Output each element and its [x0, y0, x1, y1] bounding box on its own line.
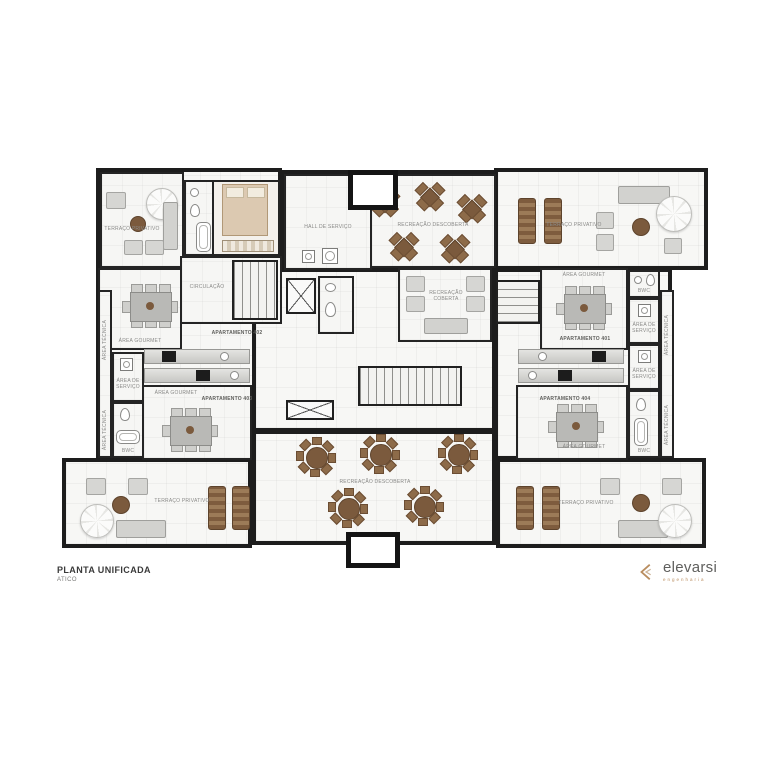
- logo-tagline: engenharia: [663, 577, 717, 582]
- label-wc-rt: BWC: [630, 288, 658, 294]
- label-service-hall: HALL DE SERVIÇO: [288, 224, 368, 230]
- stairs: [232, 260, 278, 320]
- sun-lounger: [518, 198, 536, 244]
- washer-icon: [120, 358, 133, 371]
- dining-table: [122, 284, 178, 328]
- label-lounge-covered: RECREAÇÃO COBERTA: [424, 290, 468, 303]
- label-gourmet-br: ÁREA GOURMET: [554, 444, 614, 450]
- label-tech-left-2: ÁREA TÉCNICA: [102, 380, 108, 480]
- logo-brand: elevarsi: [663, 560, 717, 575]
- sun-lounger: [516, 486, 534, 530]
- kitchen-counter: [144, 349, 250, 364]
- floor-plan-canvas: TERRAÇO PRIVATIVO CIRCULAÇÃO ÁREA GOURME…: [0, 0, 768, 768]
- elevarsi-logo-icon: [636, 560, 658, 584]
- washer-icon: [638, 350, 651, 363]
- shaft-bottom: [346, 532, 400, 568]
- armchair: [406, 276, 425, 292]
- round-table-set: [360, 434, 400, 474]
- label-wc-left: BWC: [114, 448, 142, 454]
- elevator: [286, 278, 316, 314]
- toilet: [646, 274, 655, 286]
- label-tech-left-1: ÁREA TÉCNICA: [102, 290, 108, 390]
- main-stairs: [358, 366, 462, 406]
- umbrella: [80, 504, 114, 538]
- armchair: [145, 240, 164, 255]
- plan-subtitle: ATICO: [57, 577, 77, 583]
- label-gourmet-tl: ÁREA GOURMET: [110, 338, 170, 344]
- kitchen-sink: [538, 352, 547, 361]
- armchair: [466, 296, 485, 312]
- round-table-set: [438, 434, 478, 474]
- skylight-box: [286, 400, 334, 420]
- bathtub: [196, 222, 211, 252]
- toilet: [636, 398, 646, 411]
- kitchen-sink: [230, 371, 239, 380]
- sofa: [163, 202, 178, 250]
- armchair: [124, 240, 143, 255]
- armchair: [128, 478, 148, 495]
- armchair: [596, 234, 614, 251]
- sink: [325, 283, 336, 292]
- cooktop: [196, 370, 210, 381]
- pillow: [226, 187, 244, 198]
- shaft-top: [348, 170, 398, 210]
- kitchen-counter: [518, 349, 624, 364]
- armchair: [106, 192, 126, 209]
- label-apartment-404: APARTAMENTO 404: [520, 396, 610, 402]
- umbrella: [656, 196, 692, 232]
- sofa: [424, 318, 468, 334]
- cooktop: [592, 351, 606, 362]
- umbrella: [658, 504, 692, 538]
- round-table-set: [296, 437, 336, 477]
- armchair: [662, 478, 682, 495]
- stove-icon: [322, 248, 338, 264]
- washer-icon: [638, 304, 651, 317]
- sink: [190, 188, 199, 197]
- sun-lounger: [542, 486, 560, 530]
- kitchen-sink: [220, 352, 229, 361]
- label-terrace-br: TERRAÇO PRIVATIVO: [556, 500, 616, 506]
- round-side-table: [632, 494, 650, 512]
- label-terrace-bl: TERRAÇO PRIVATIVO: [152, 498, 212, 504]
- label-tech-right-2: ÁREA TÉCNICA: [664, 375, 670, 475]
- label-terrace-tr: TERRAÇO PRIVATIVO: [544, 222, 604, 228]
- round-side-table: [112, 496, 130, 514]
- dining-table: [556, 286, 612, 330]
- label-apartment-403: APARTAMENTO 403: [182, 396, 272, 402]
- label-apartment-402: APARTAMENTO 402: [192, 330, 282, 336]
- pillow: [247, 187, 265, 198]
- dining-table: [548, 404, 604, 448]
- label-service-r1: ÁREA DE SERVIÇO: [630, 322, 658, 335]
- armchair: [600, 478, 620, 495]
- kitchen-sink: [528, 371, 537, 380]
- cooktop: [162, 351, 176, 362]
- bed: [222, 184, 268, 236]
- round-table-set: [404, 486, 444, 526]
- label-tech-right-1: ÁREA TÉCNICA: [664, 285, 670, 385]
- round-side-table: [632, 218, 650, 236]
- bathtub: [116, 430, 140, 444]
- armchair: [406, 296, 425, 312]
- label-terrace-tl: TERRAÇO PRIVATIVO: [102, 226, 162, 232]
- sofa: [116, 520, 166, 538]
- label-service-left: ÁREA DE SERVIÇO: [114, 378, 142, 391]
- dining-table: [162, 408, 218, 452]
- plan-title: PLANTA UNIFICADA: [57, 565, 151, 575]
- toilet: [190, 204, 200, 217]
- cooktop: [558, 370, 572, 381]
- sun-lounger: [544, 198, 562, 244]
- toilet: [120, 408, 130, 421]
- stairs-right: [496, 280, 540, 324]
- label-recreation-bottom: RECREAÇÃO DESCOBERTA: [330, 479, 420, 485]
- label-gourmet-tr: ÁREA GOURMET: [554, 272, 614, 278]
- label-recreation-top: RECREAÇÃO DESCOBERTA: [388, 222, 478, 228]
- toilet: [325, 302, 336, 317]
- sink: [634, 276, 642, 284]
- wc-center: [318, 276, 354, 334]
- label-circulation: CIRCULAÇÃO: [184, 284, 230, 290]
- sun-lounger: [208, 486, 226, 530]
- bathtub: [634, 418, 648, 446]
- round-table-set: [328, 488, 368, 528]
- armchair: [664, 238, 682, 254]
- company-logo: elevarsi engenharia: [636, 560, 746, 596]
- label-wc-rb: BWC: [630, 448, 658, 454]
- washer-icon: [302, 250, 315, 263]
- armchair: [466, 276, 485, 292]
- wardrobe: [222, 240, 274, 252]
- label-service-r2: ÁREA DE SERVIÇO: [630, 368, 658, 381]
- armchair: [86, 478, 106, 495]
- sun-lounger: [232, 486, 250, 530]
- label-apartment-401: APARTAMENTO 401: [540, 336, 630, 342]
